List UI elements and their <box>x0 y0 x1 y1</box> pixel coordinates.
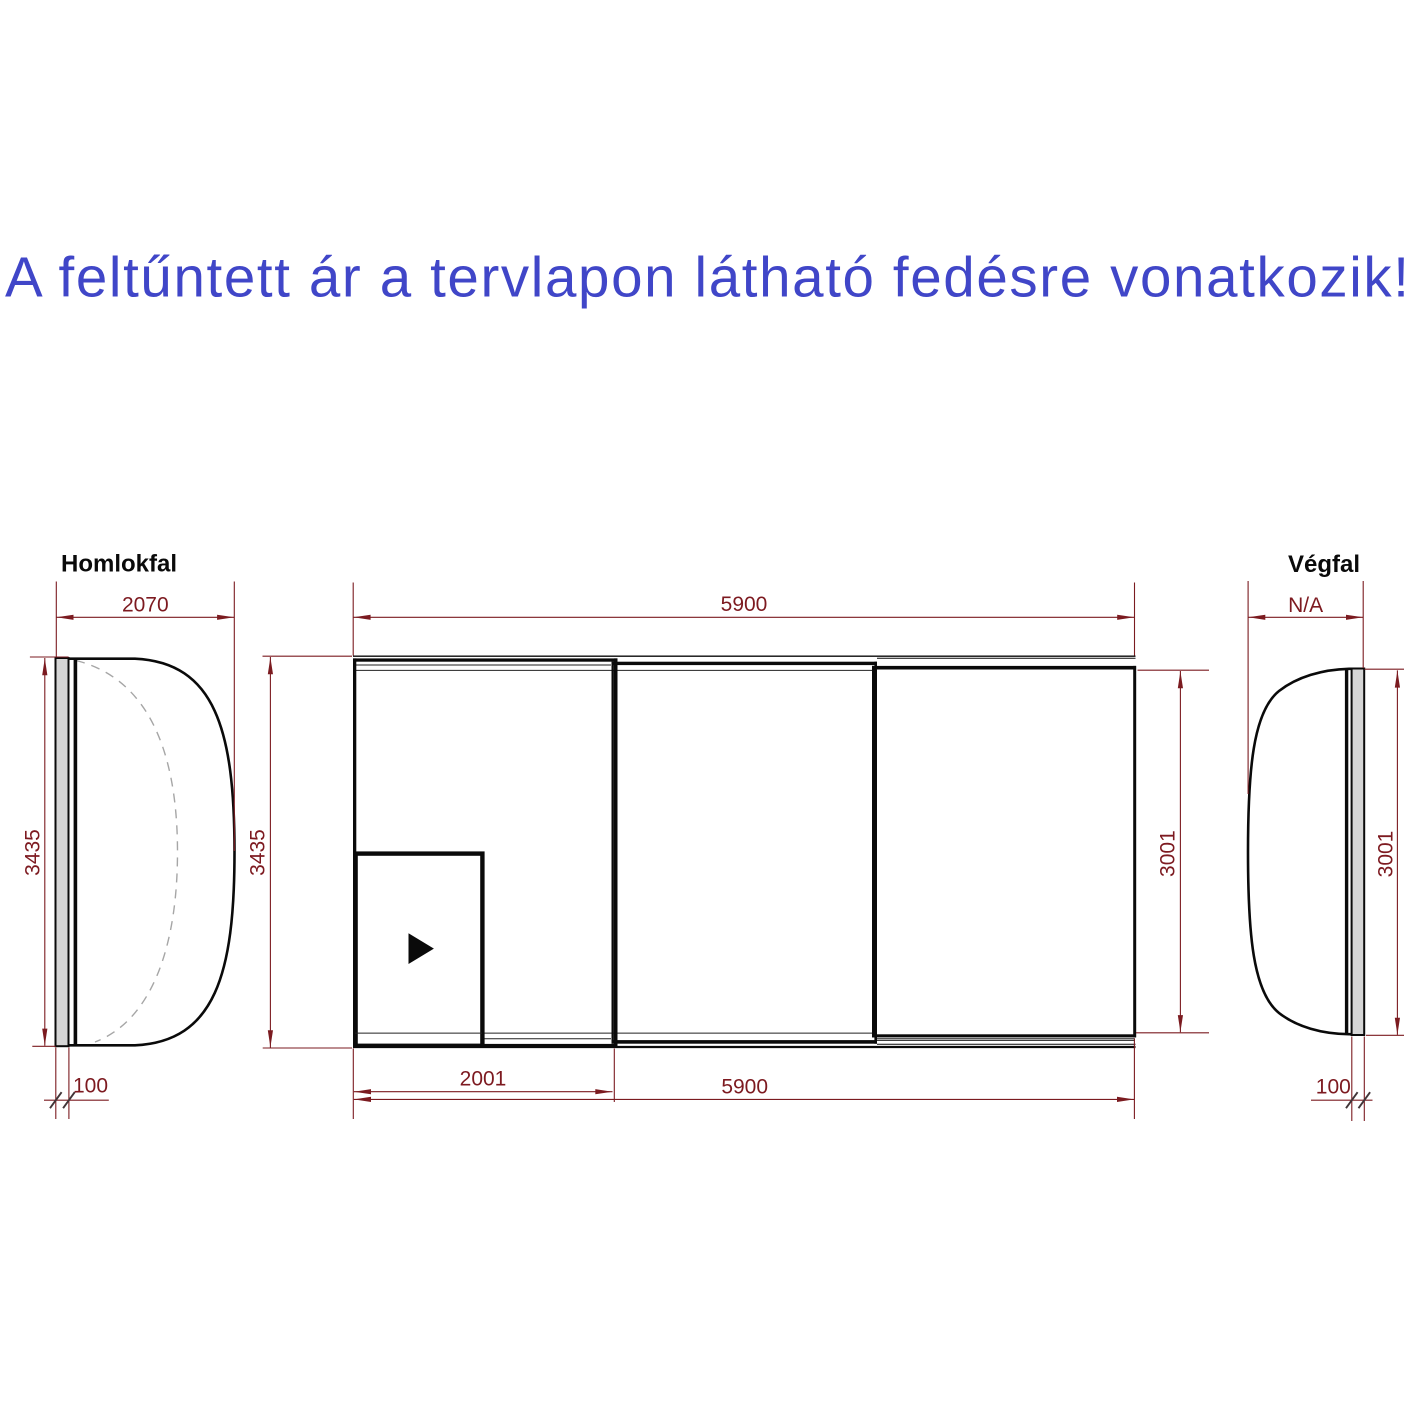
svg-text:2001: 2001 <box>460 1068 507 1091</box>
svg-text:5900: 5900 <box>721 1076 768 1099</box>
svg-text:N/A: N/A <box>1288 594 1323 617</box>
svg-text:100: 100 <box>73 1074 108 1097</box>
svg-text:Végfal: Végfal <box>1288 551 1360 578</box>
svg-text:2070: 2070 <box>122 594 169 617</box>
svg-text:3001: 3001 <box>1156 830 1179 877</box>
svg-text:Homlokfal: Homlokfal <box>61 551 177 578</box>
svg-text:3001: 3001 <box>1374 831 1397 878</box>
svg-text:5900: 5900 <box>721 593 768 616</box>
svg-text:3435: 3435 <box>21 829 44 876</box>
svg-text:3435: 3435 <box>246 829 269 876</box>
svg-text:A feltűntett ár a tervlapon lá: A feltűntett ár a tervlapon látható fedé… <box>5 246 1409 309</box>
svg-text:100: 100 <box>1316 1075 1351 1098</box>
